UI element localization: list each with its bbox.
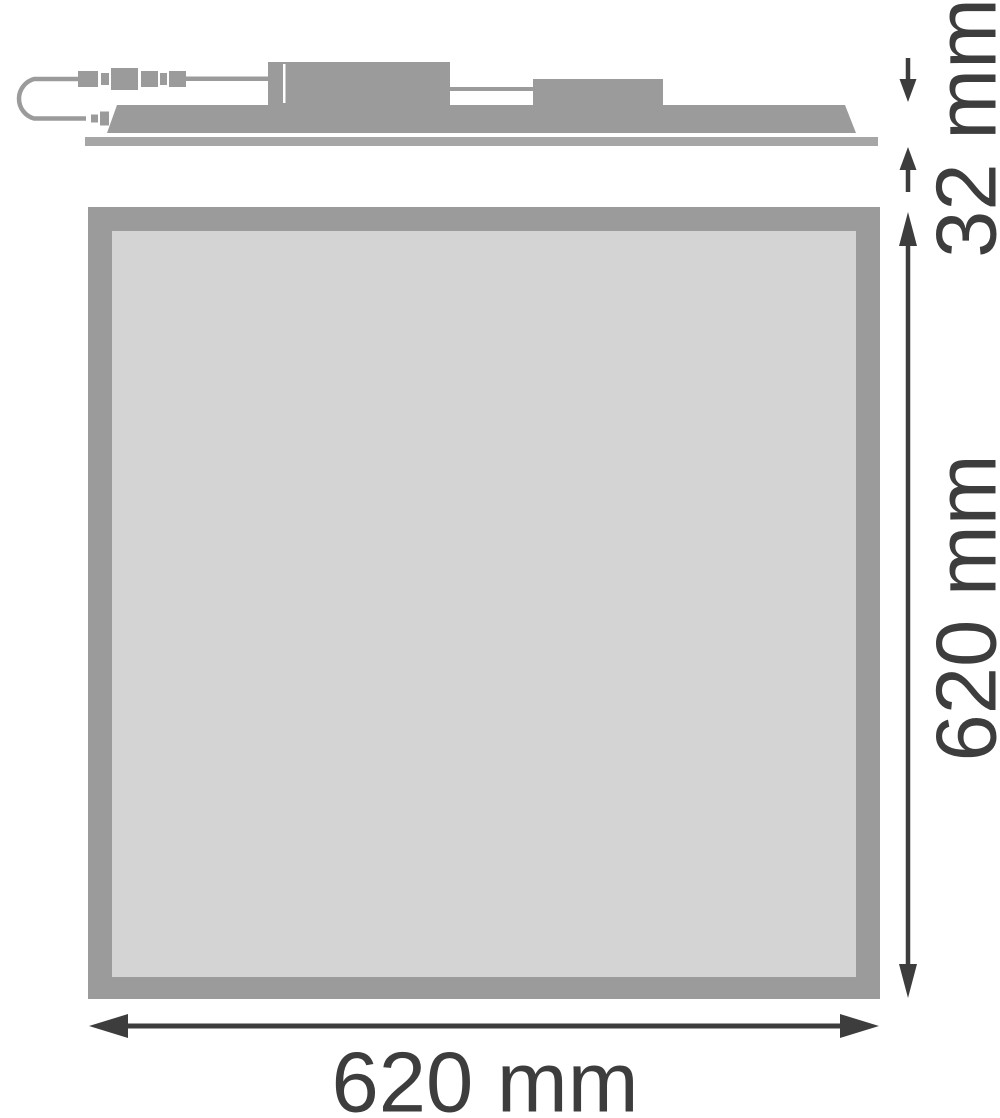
front-view (88, 207, 880, 999)
light-surface (112, 231, 856, 977)
junction-box (533, 79, 663, 105)
arrow-left-icon (89, 1014, 128, 1038)
panel-connector-icon (91, 112, 109, 126)
dimension-drawing-page: 32 mm 620 mm 620 mm (0, 0, 1000, 1118)
panel-height-dimension-label: 620 mm (920, 454, 1000, 761)
connector-segment (101, 73, 109, 85)
driver-link-wire (450, 87, 533, 91)
panel-width-dimension-label: 620 mm (331, 1036, 638, 1118)
driver-body (268, 62, 450, 105)
panel-height-dimension: 620 mm (899, 212, 1000, 998)
panel-body-side (107, 105, 856, 133)
arrow-up-icon (900, 147, 917, 170)
power-cable (19, 79, 86, 119)
height-dimension: 32 mm (900, 0, 1000, 258)
arrow-down-icon (900, 79, 917, 102)
connector-segment (169, 71, 186, 87)
driver-box (268, 62, 450, 105)
driver-endcap-seam (283, 64, 286, 103)
led-panel-dimension-drawing: 32 mm 620 mm 620 mm (0, 0, 1000, 1118)
connector-segment (91, 115, 98, 123)
driver-input-wire (186, 77, 268, 82)
connector-segment (141, 71, 158, 87)
connector-segment (160, 73, 167, 85)
connector-segment (100, 112, 109, 126)
connector-segment (78, 71, 98, 87)
arrow-right-icon (840, 1014, 879, 1038)
connector-plug-icon (78, 68, 186, 90)
side-view (19, 62, 878, 146)
connector-segment (111, 68, 138, 90)
arrow-down-icon (899, 964, 917, 998)
panel-frame-side (85, 137, 878, 146)
height-dimension-label: 32 mm (920, 0, 1000, 258)
arrow-up-icon (899, 212, 917, 246)
panel-width-dimension: 620 mm (89, 1014, 879, 1118)
